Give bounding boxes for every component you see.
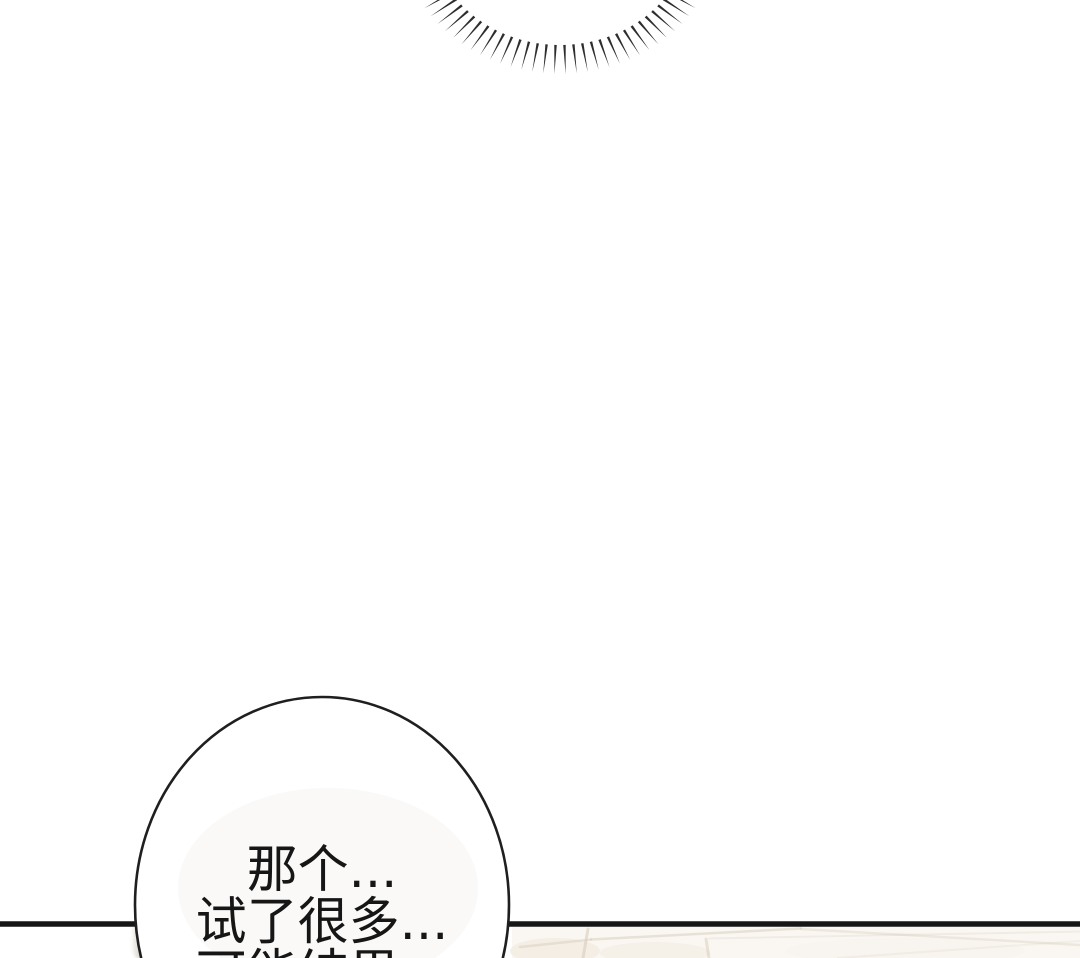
speech-bubble-text: 那个... 试了很多... 可能结果... (160, 845, 484, 958)
speech-line-2: 试了很多... (160, 897, 484, 949)
scene-art (0, 0, 1080, 958)
speech-line-3-clipped: 可能结果... (160, 949, 484, 958)
comic-panel: 那个... 试了很多... 可能结果... (0, 0, 1080, 958)
speech-line-1: 那个... (160, 845, 484, 897)
